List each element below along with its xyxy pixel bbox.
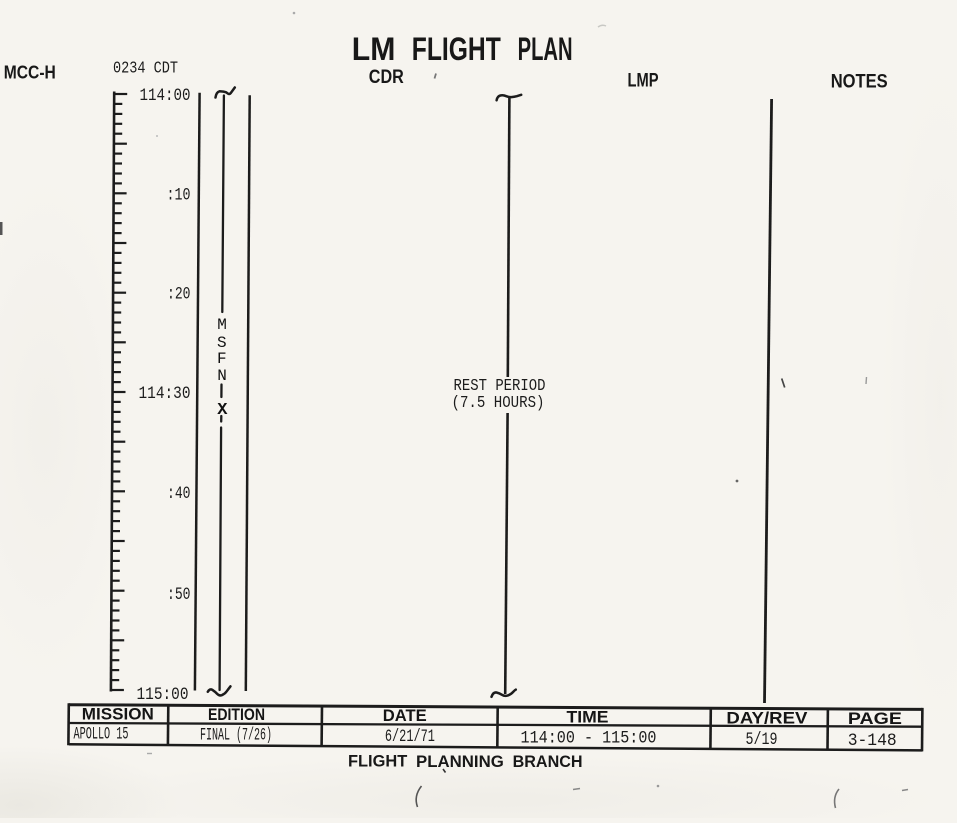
svg-text::20: :20 — [167, 285, 191, 305]
svg-text:EDITION: EDITION — [208, 705, 265, 724]
svg-text:DAY/REV: DAY/REV — [726, 709, 808, 728]
svg-text:PAGE: PAGE — [848, 709, 902, 728]
svg-text:X: X — [217, 401, 228, 420]
svg-text:M: M — [217, 316, 227, 334]
svg-text:F: F — [217, 350, 227, 368]
svg-text:5/19: 5/19 — [746, 731, 778, 750]
svg-text:114:00: 114:00 — [140, 86, 191, 106]
svg-text:0234 CDT: 0234 CDT — [113, 60, 178, 79]
svg-text:(7.5 HOURS): (7.5 HOURS) — [452, 393, 545, 412]
svg-text:115:00: 115:00 — [137, 685, 189, 705]
svg-text:6/21/71: 6/21/71 — [385, 728, 435, 747]
svg-text:MCC-H: MCC-H — [4, 62, 56, 82]
svg-text::50: :50 — [167, 585, 191, 605]
svg-text:CDR: CDR — [369, 67, 404, 88]
svg-text:LM: LM — [352, 31, 396, 67]
svg-text:3-148: 3-148 — [848, 732, 897, 751]
svg-text:BRANCH: BRANCH — [513, 752, 583, 771]
svg-text::40: :40 — [167, 484, 191, 504]
svg-text:LMP: LMP — [628, 71, 659, 92]
svg-text:DATE: DATE — [383, 706, 427, 725]
svg-text:PLAN: PLAN — [518, 31, 573, 67]
svg-text:114:30: 114:30 — [139, 384, 191, 404]
svg-text:APOLLO 15: APOLLO 15 — [74, 726, 129, 745]
svg-text:PLANNING: PLANNING — [416, 752, 504, 771]
svg-text:FLIGHT: FLIGHT — [412, 31, 501, 67]
svg-text:MISSION: MISSION — [82, 704, 154, 723]
svg-text:FINAL (7/26): FINAL (7/26) — [200, 727, 272, 746]
svg-text:114:00 - 115:00: 114:00 - 115:00 — [521, 730, 657, 749]
svg-text::10: :10 — [167, 185, 191, 205]
svg-text:TIME: TIME — [567, 707, 609, 726]
svg-text:FLIGHT: FLIGHT — [348, 751, 408, 770]
svg-text:N: N — [217, 367, 227, 385]
svg-text:NOTES: NOTES — [831, 71, 888, 92]
